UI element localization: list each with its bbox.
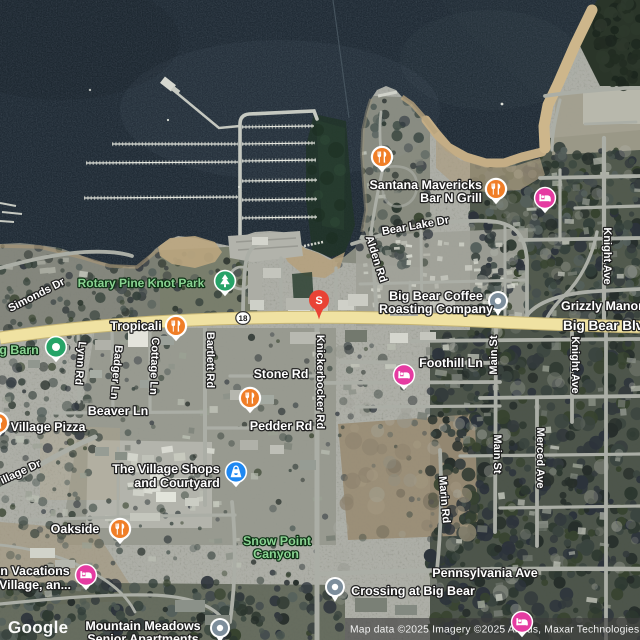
svg-text:g Barn: g Barn	[0, 343, 39, 357]
svg-text:Senior Apartments: Senior Apartments	[87, 632, 198, 640]
svg-text:Grizzly Manor: Grizzly Manor	[561, 299, 640, 313]
svg-text:Santana Mavericks: Santana Mavericks	[369, 178, 482, 192]
svg-text:Main St: Main St	[488, 335, 500, 374]
svg-text:Pedder Rd: Pedder Rd	[250, 419, 313, 433]
svg-text:Canyon: Canyon	[253, 547, 299, 561]
svg-text:Knight Ave: Knight Ave	[601, 227, 613, 284]
svg-text:Bar N Grill: Bar N Grill	[420, 191, 482, 205]
svg-text:Tropicali: Tropicali	[110, 319, 161, 333]
svg-text:Rotary Pine Knot Park: Rotary Pine Knot Park	[78, 276, 205, 290]
svg-text:Pennsylvania Ave: Pennsylvania Ave	[432, 566, 537, 580]
svg-text:Foothill Ln: Foothill Ln	[419, 356, 483, 370]
svg-text:Roasting Company: Roasting Company	[379, 302, 493, 316]
svg-text:Village Pizza: Village Pizza	[11, 420, 87, 434]
svg-text:Google: Google	[8, 618, 68, 637]
svg-text:Stone Rd: Stone Rd	[254, 367, 309, 381]
svg-text:Main St: Main St	[491, 434, 503, 473]
svg-text:Knight Ave: Knight Ave	[569, 336, 581, 393]
svg-text:and Courtyard: and Courtyard	[134, 476, 219, 490]
svg-text:Crossing at Big Bear: Crossing at Big Bear	[351, 584, 475, 598]
svg-text:Map data ©2025 Imagery ©2025 A: Map data ©2025 Imagery ©2025 Airbus, Max…	[350, 625, 639, 636]
svg-text:Cottage Ln: Cottage Ln	[147, 337, 161, 395]
svg-text:Oakside: Oakside	[51, 522, 100, 536]
svg-text:Village, an...: Village, an...	[0, 578, 71, 592]
svg-text:Big Bear Coffee: Big Bear Coffee	[389, 289, 483, 303]
svg-text:The Village Shops: The Village Shops	[112, 462, 219, 476]
svg-text:Snow Point: Snow Point	[243, 534, 312, 548]
svg-text:Mountain Meadows: Mountain Meadows	[85, 619, 200, 633]
svg-text:Big Bear Blvd: Big Bear Blvd	[563, 318, 640, 333]
svg-text:S: S	[315, 295, 322, 307]
svg-text:Merced Ave: Merced Ave	[534, 428, 546, 489]
svg-text:Bartlett Rd: Bartlett Rd	[204, 332, 216, 388]
svg-text:Knickerbocker Rd: Knickerbocker Rd	[314, 335, 326, 429]
svg-text:18: 18	[239, 314, 248, 323]
svg-text:n Vacations: n Vacations	[0, 564, 70, 578]
svg-text:Beaver Ln: Beaver Ln	[88, 404, 148, 418]
